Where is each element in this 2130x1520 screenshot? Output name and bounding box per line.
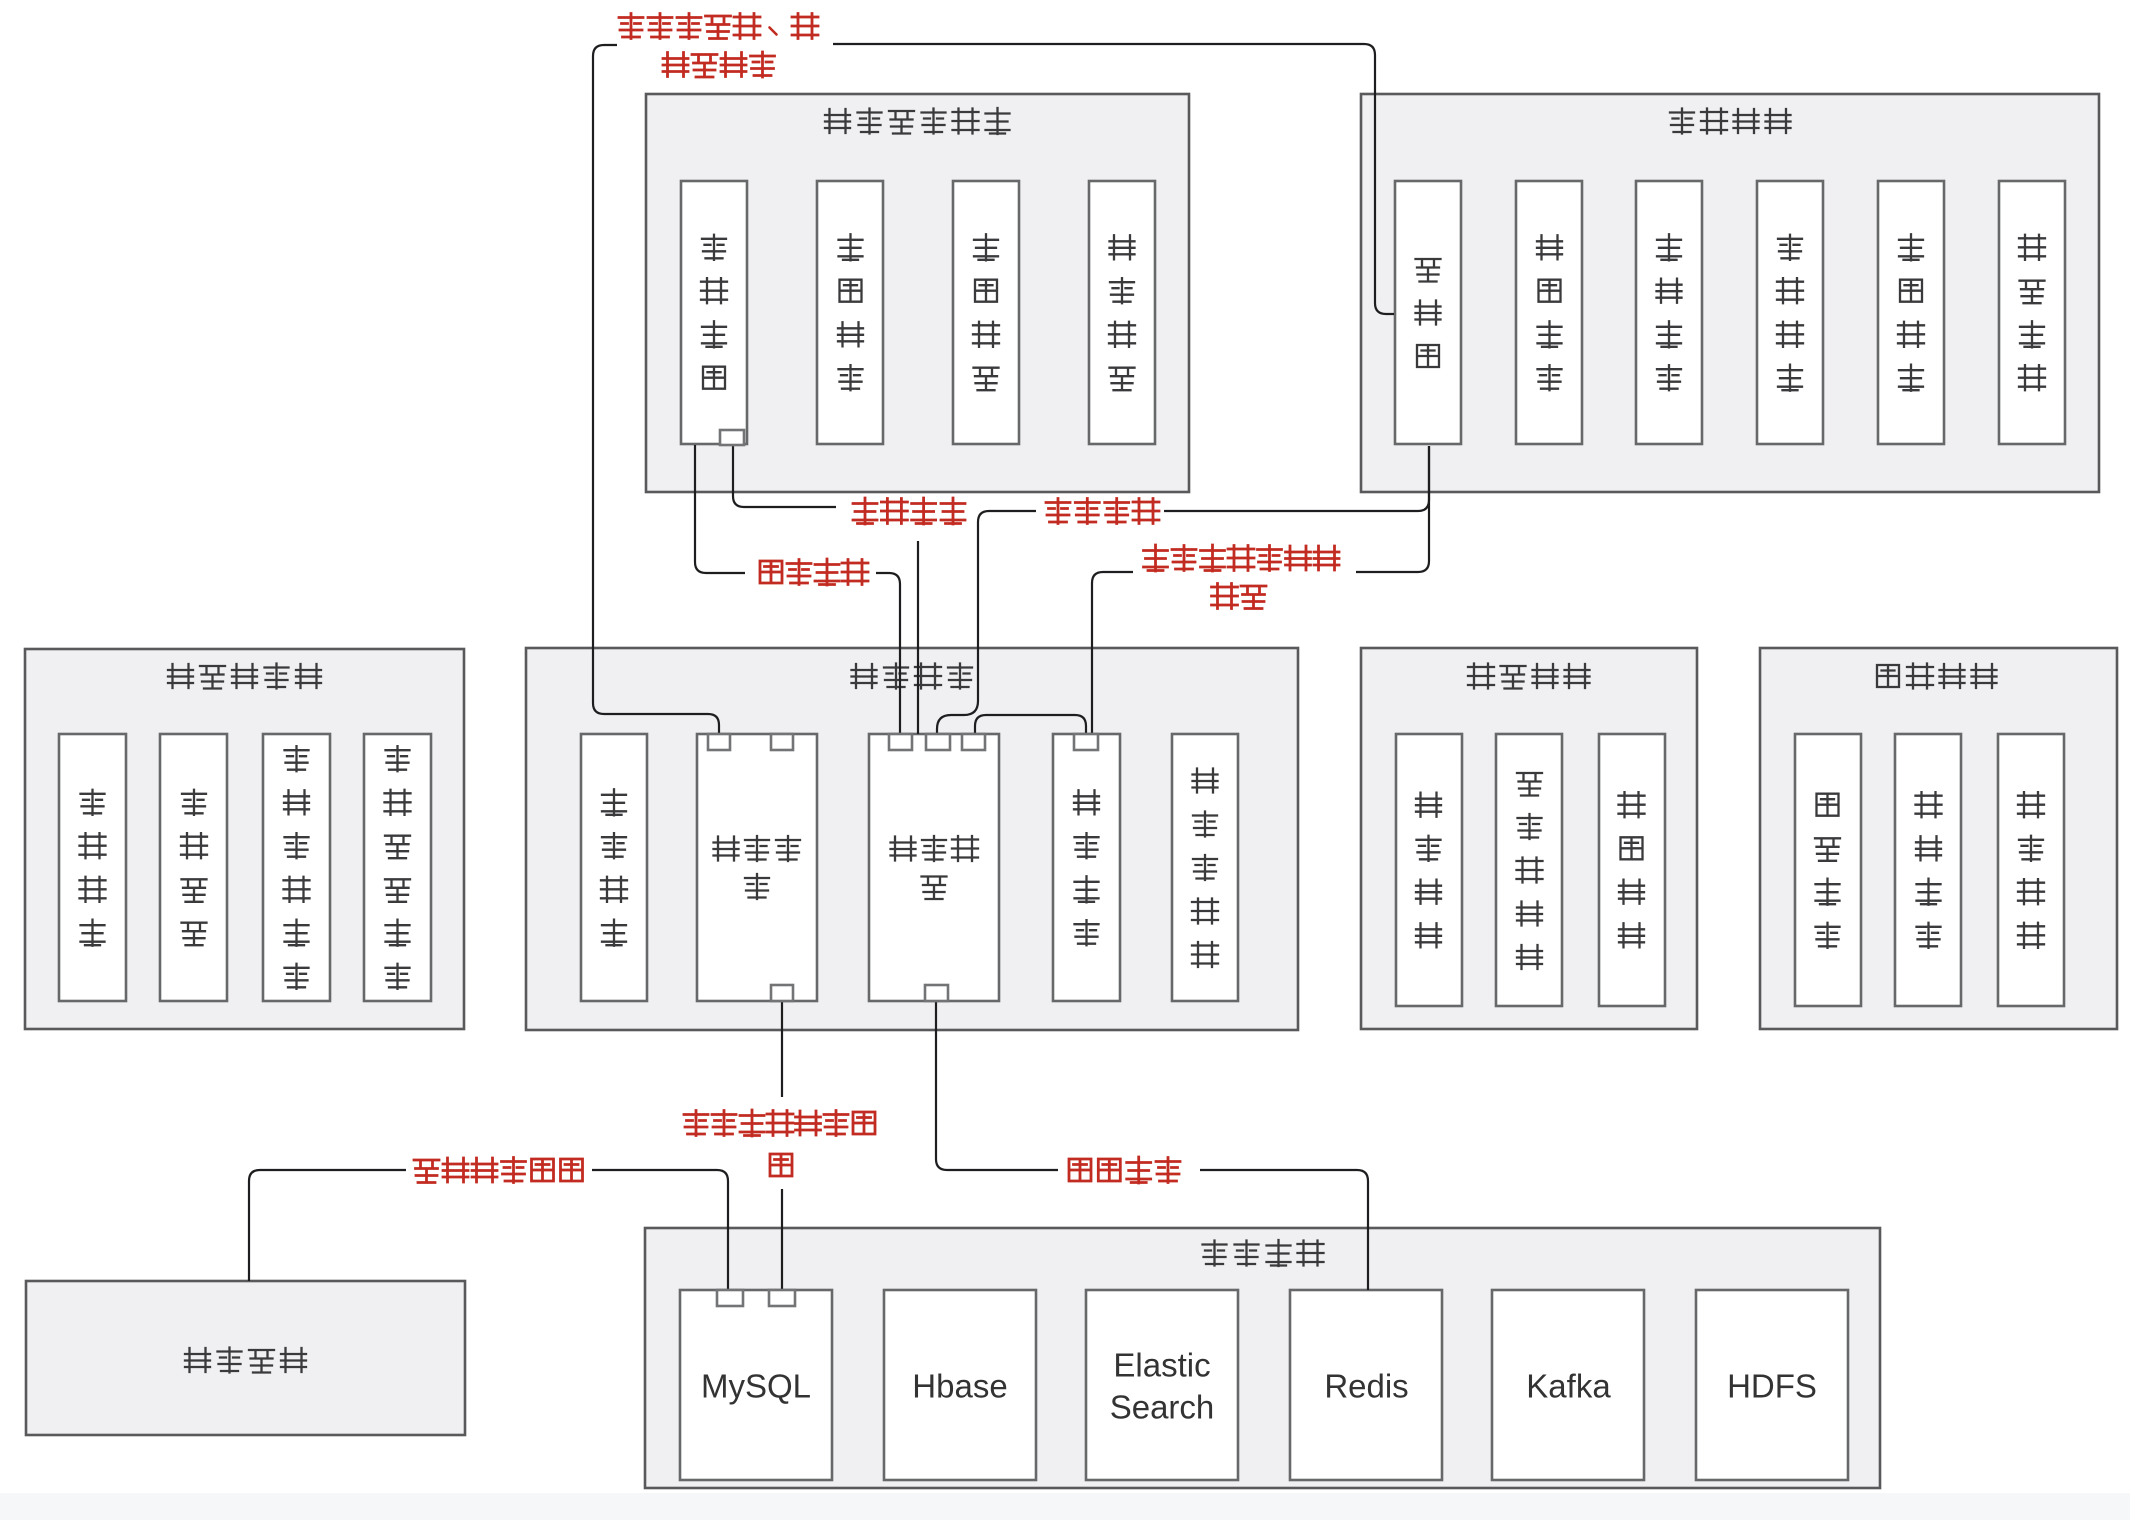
svg-text:Search: Search: [1110, 1389, 1215, 1426]
svg-text:Elastic: Elastic: [1113, 1347, 1210, 1384]
svg-text:HDFS: HDFS: [1727, 1368, 1817, 1405]
svg-text:Redis: Redis: [1324, 1368, 1408, 1405]
svg-text:Kafka: Kafka: [1526, 1368, 1611, 1405]
svg-text:MySQL: MySQL: [701, 1368, 811, 1405]
svg-text:Hbase: Hbase: [912, 1368, 1007, 1405]
